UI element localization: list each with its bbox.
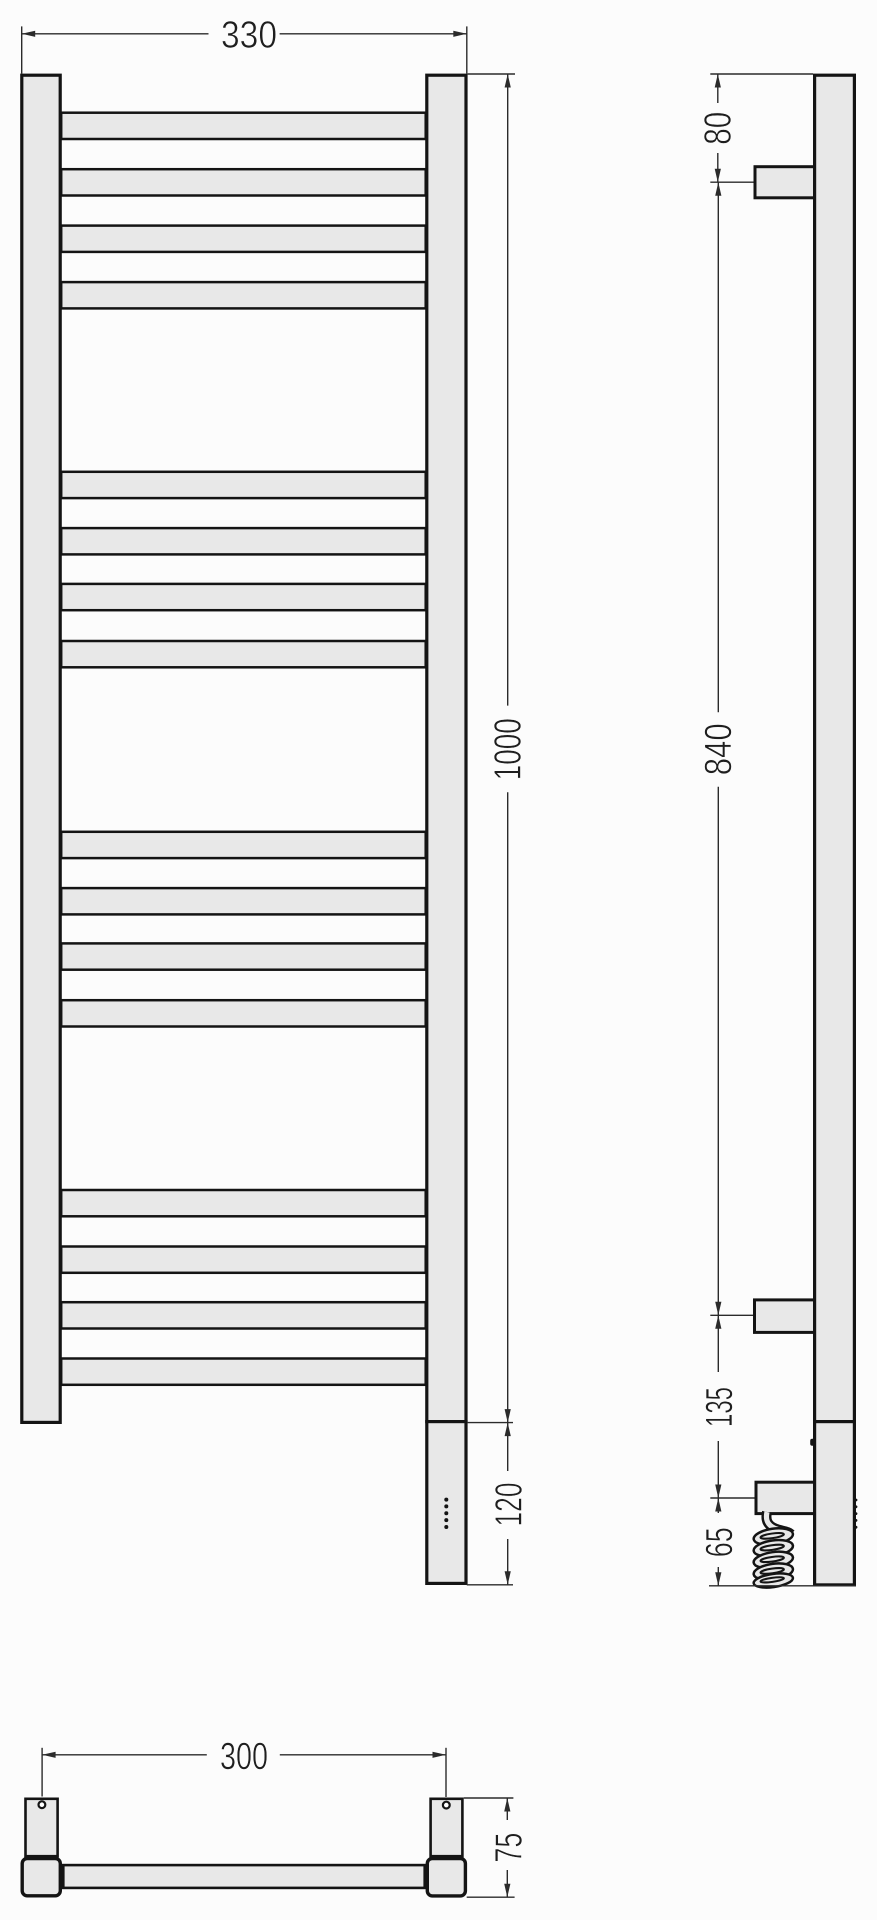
svg-text:135: 135: [699, 1387, 741, 1427]
svg-text:300: 300: [220, 1736, 268, 1778]
svg-text:120: 120: [488, 1483, 530, 1527]
svg-text:75: 75: [488, 1833, 530, 1863]
svg-text:65: 65: [699, 1527, 741, 1557]
svg-text:840: 840: [698, 723, 740, 775]
svg-text:330: 330: [221, 15, 277, 57]
svg-text:80: 80: [697, 112, 739, 145]
svg-text:1000: 1000: [488, 718, 530, 780]
